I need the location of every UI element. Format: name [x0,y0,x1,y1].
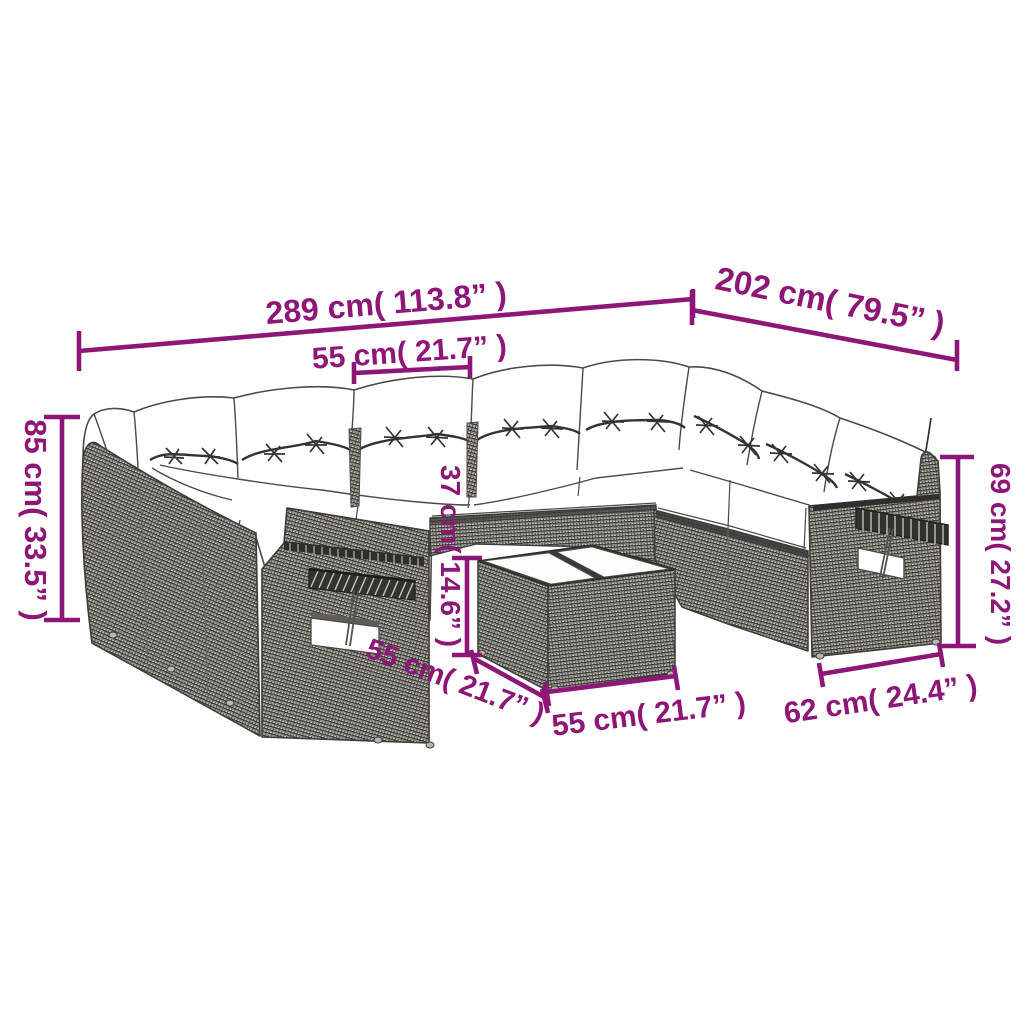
svg-text:85 cm( 33.5” ): 85 cm( 33.5” ) [18,419,53,621]
svg-text:69 cm( 27.2” ): 69 cm( 27.2” ) [985,463,1016,645]
svg-text:37 cm( 14.6” ): 37 cm( 14.6” ) [435,465,466,647]
